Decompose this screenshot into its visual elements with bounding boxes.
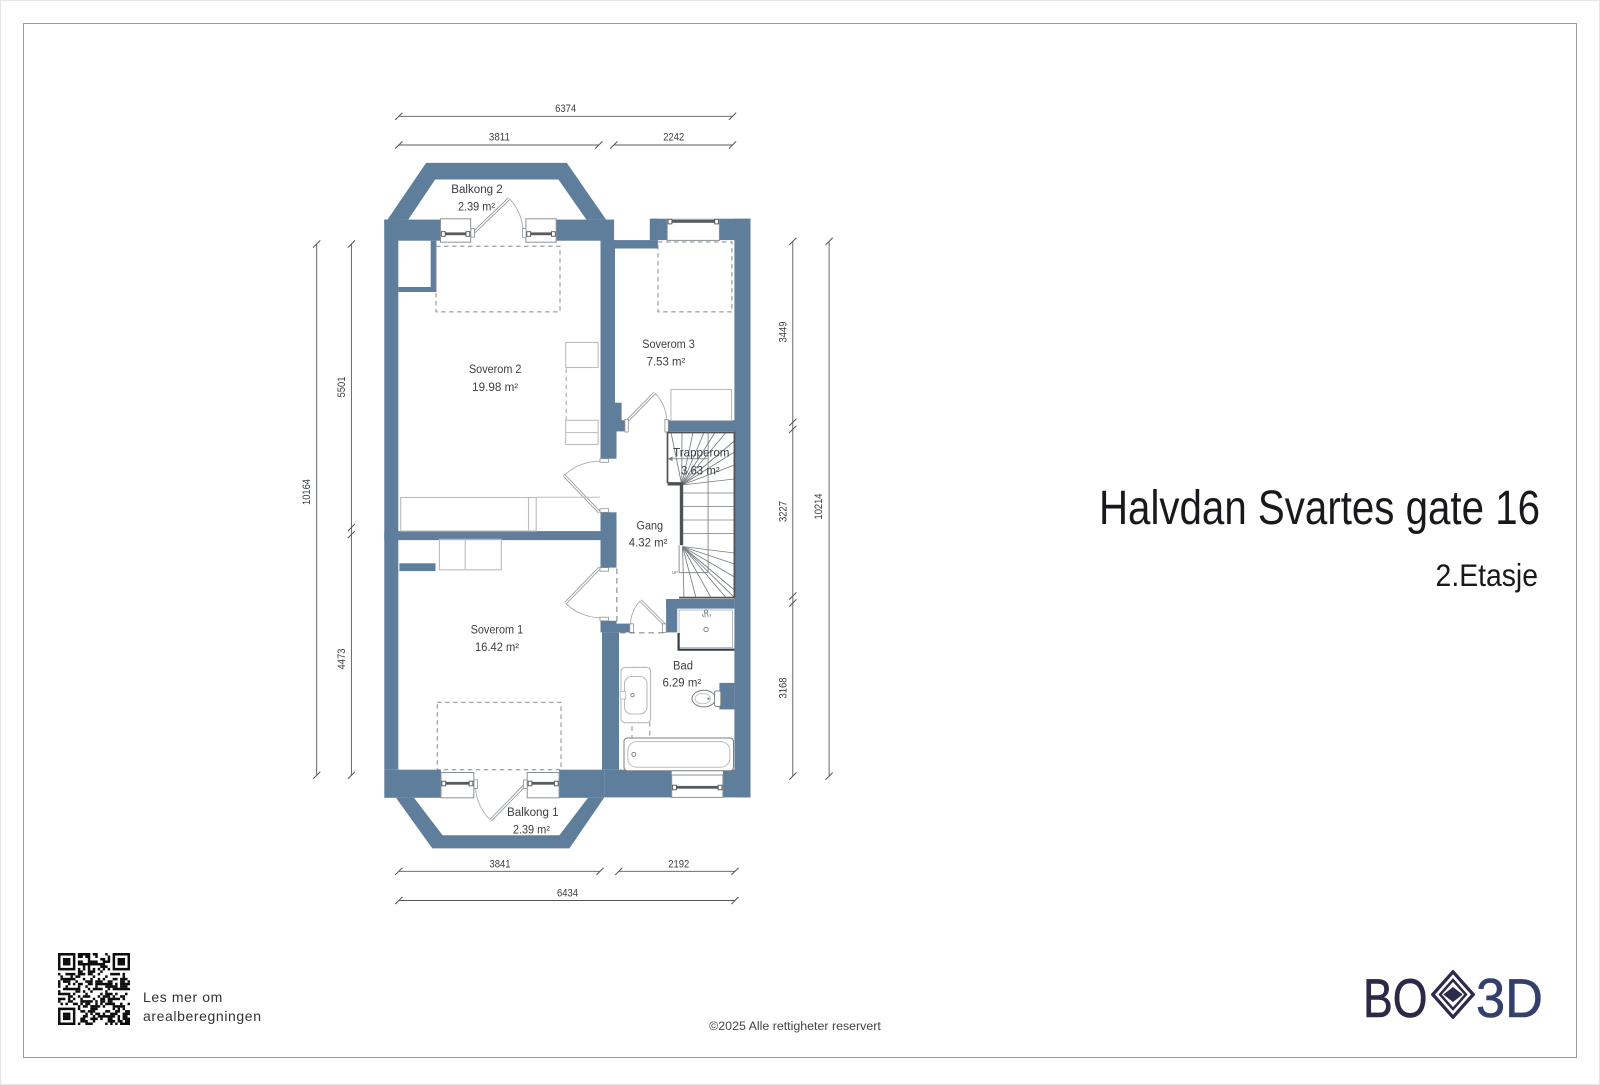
svg-text:2192: 2192	[668, 858, 689, 870]
svg-text:16.42 m²: 16.42 m²	[475, 642, 519, 654]
svg-text:3841: 3841	[490, 858, 511, 870]
svg-text:10214: 10214	[813, 494, 825, 520]
svg-text:Balkong 1: Balkong 1	[507, 807, 559, 819]
svg-text:6374: 6374	[555, 103, 576, 115]
svg-text:Soverom 2: Soverom 2	[469, 364, 522, 376]
svg-text:UP: UP	[672, 570, 678, 575]
svg-text:Trapperom: Trapperom	[673, 448, 729, 460]
svg-text:3168: 3168	[778, 678, 790, 699]
svg-text:Balkong 2: Balkong 2	[451, 184, 503, 196]
svg-text:2.39 m²: 2.39 m²	[513, 824, 550, 836]
svg-text:5501: 5501	[336, 377, 348, 398]
svg-text:Bad: Bad	[673, 661, 693, 673]
svg-text:19.98 m²: 19.98 m²	[472, 382, 518, 394]
svg-text:2242: 2242	[663, 132, 684, 144]
svg-text:Gang: Gang	[637, 521, 664, 533]
svg-text:4.32 m²: 4.32 m²	[629, 537, 668, 549]
svg-text:3227: 3227	[778, 501, 790, 522]
svg-text:3449: 3449	[778, 322, 790, 343]
svg-text:Soverom 3: Soverom 3	[642, 339, 695, 351]
svg-text:6434: 6434	[557, 888, 578, 900]
svg-text:6.29 m²: 6.29 m²	[662, 677, 701, 689]
svg-text:3811: 3811	[489, 132, 510, 144]
svg-text:2.39 m²: 2.39 m²	[458, 201, 495, 213]
svg-text:4473: 4473	[336, 649, 348, 670]
svg-text:10164: 10164	[301, 479, 313, 505]
svg-text:7.53 m²: 7.53 m²	[647, 356, 686, 368]
svg-text:Soverom 1: Soverom 1	[471, 625, 524, 637]
svg-text:3.63 m²: 3.63 m²	[681, 466, 720, 478]
